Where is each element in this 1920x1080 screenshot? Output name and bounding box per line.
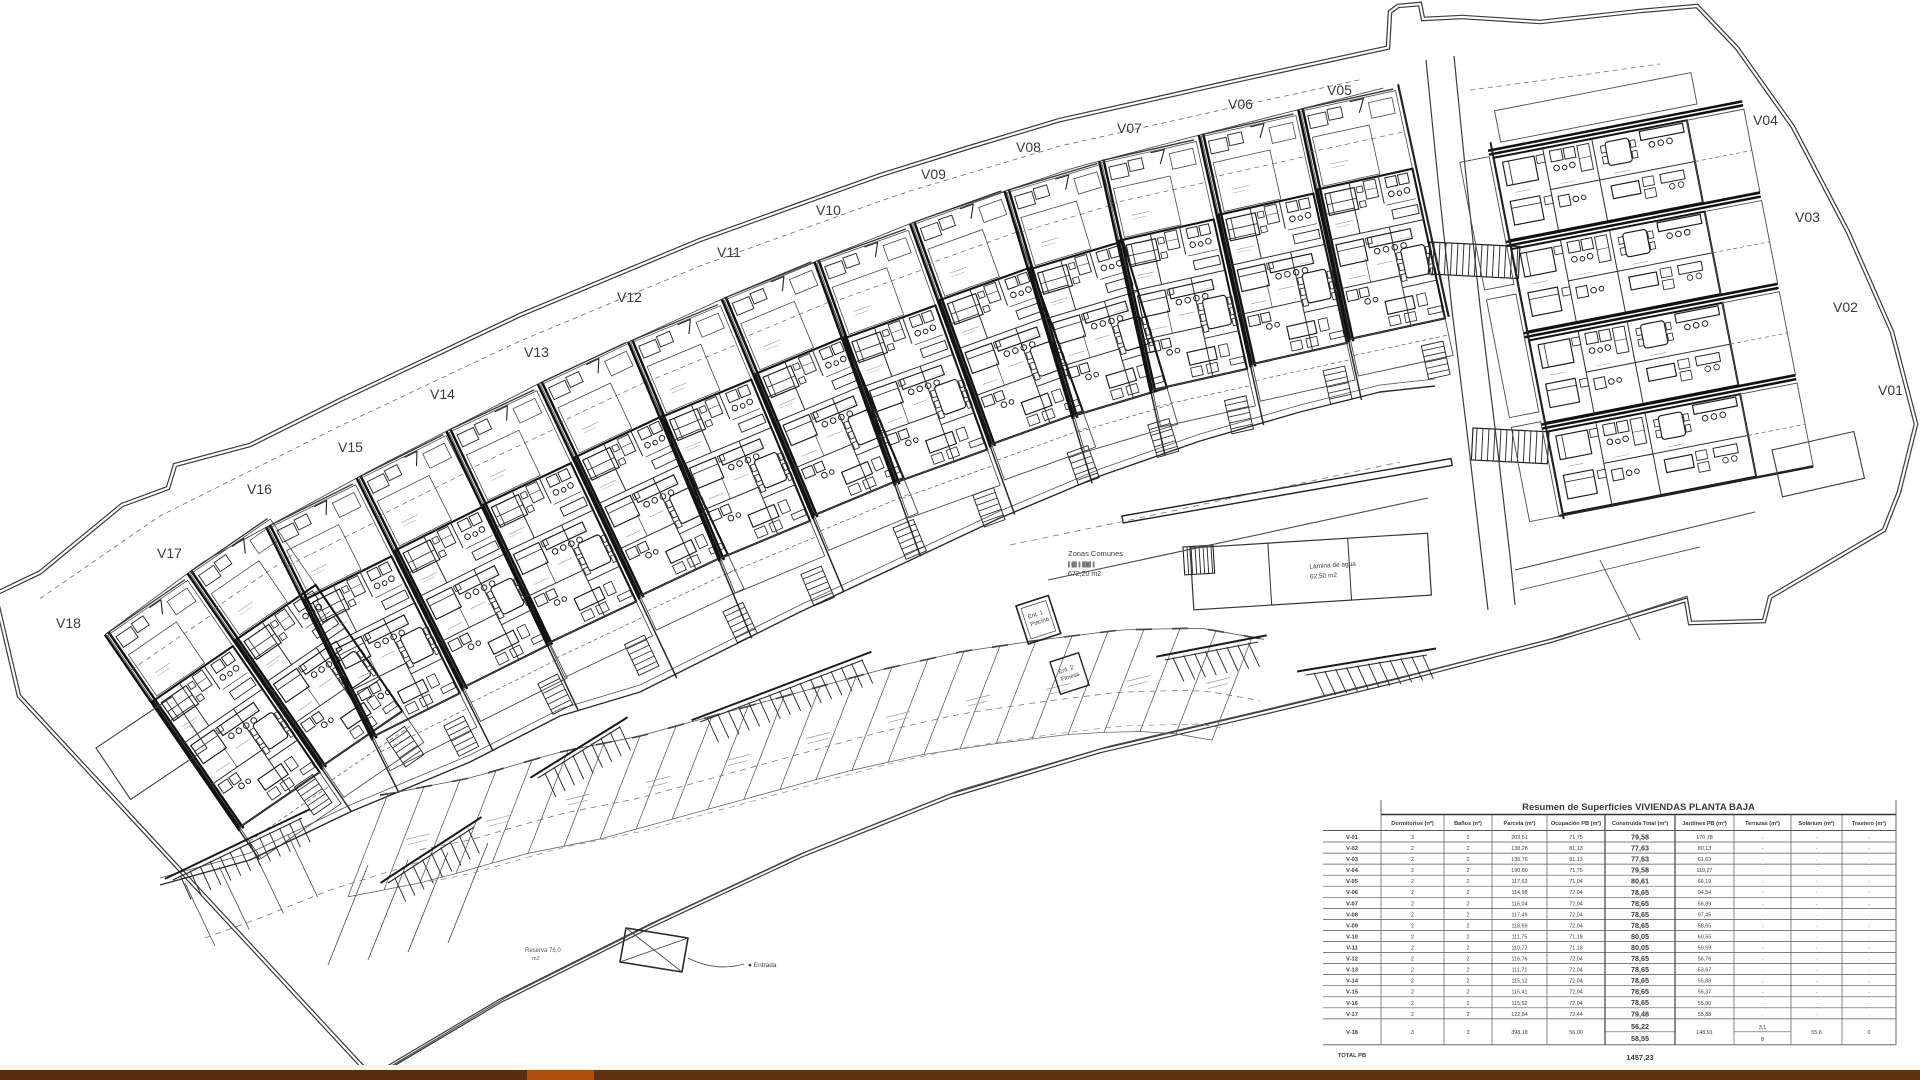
svg-text:▌█▌▌██▌▌: ▌█▌▌██▌▌ <box>1068 561 1096 568</box>
svg-text:-: - <box>1868 968 1870 974</box>
svg-text:-: - <box>1762 979 1764 985</box>
svg-text:116,04: 116,04 <box>1511 901 1527 907</box>
svg-text:V09: V09 <box>921 166 946 182</box>
svg-text:V17: V17 <box>157 545 182 561</box>
svg-text:V04: V04 <box>1753 112 1778 128</box>
svg-text:-: - <box>1762 1012 1764 1018</box>
svg-text:2: 2 <box>1411 990 1414 996</box>
svg-text:55,6: 55,6 <box>1811 1030 1822 1036</box>
svg-text:-: - <box>1762 846 1764 852</box>
svg-text:78,65: 78,65 <box>1631 921 1649 930</box>
svg-text:2: 2 <box>1467 901 1470 907</box>
svg-text:3,1: 3,1 <box>1759 1025 1767 1031</box>
svg-text:56,89: 56,89 <box>1698 901 1712 907</box>
svg-text:Baños (nº): Baños (nº) <box>1454 821 1482 827</box>
svg-text:0: 0 <box>1868 1030 1871 1036</box>
svg-text:-: - <box>1816 912 1818 918</box>
svg-text:Solárium (m²): Solárium (m²) <box>1798 820 1834 827</box>
svg-text:V18: V18 <box>56 615 81 631</box>
svg-text:72,04: 72,04 <box>1569 912 1583 918</box>
svg-text:-: - <box>1762 990 1764 996</box>
svg-text:-: - <box>1762 890 1764 896</box>
svg-text:116,76: 116,76 <box>1511 957 1527 963</box>
svg-text:-: - <box>1762 923 1764 929</box>
svg-text:-: - <box>1816 868 1818 874</box>
svg-text:3: 3 <box>1411 1030 1414 1036</box>
svg-text:2: 2 <box>1411 946 1414 952</box>
svg-text:-: - <box>1762 935 1764 941</box>
svg-text:V07: V07 <box>1117 120 1142 136</box>
svg-text:-: - <box>1868 890 1870 896</box>
svg-text:115,12: 115,12 <box>1511 979 1527 985</box>
svg-text:V-02: V-02 <box>1346 846 1358 852</box>
svg-text:V-17: V-17 <box>1346 1012 1358 1018</box>
svg-text:V-12: V-12 <box>1346 957 1358 963</box>
svg-text:72,04: 72,04 <box>1569 957 1583 963</box>
svg-text:V-01: V-01 <box>1346 835 1359 841</box>
svg-text:81,13: 81,13 <box>1569 857 1583 863</box>
svg-text:V-08: V-08 <box>1346 912 1359 918</box>
svg-text:2: 2 <box>1411 868 1414 874</box>
svg-text:-: - <box>1762 912 1764 918</box>
svg-text:2: 2 <box>1467 868 1470 874</box>
svg-text:● Entrada: ● Entrada <box>748 962 777 969</box>
svg-text:80,05: 80,05 <box>1631 943 1649 952</box>
svg-text:122,84: 122,84 <box>1511 1012 1528 1018</box>
svg-text:115,52: 115,52 <box>1511 1001 1527 1007</box>
svg-text:2: 2 <box>1467 923 1470 929</box>
svg-text:-: - <box>1762 857 1764 863</box>
svg-text:2: 2 <box>1467 857 1470 863</box>
svg-text:79,58: 79,58 <box>1631 833 1649 842</box>
svg-text:71,04: 71,04 <box>1569 879 1583 885</box>
svg-text:-: - <box>1868 857 1870 863</box>
svg-text:2: 2 <box>1411 935 1414 941</box>
svg-text:2: 2 <box>1411 901 1414 907</box>
svg-text:m2: m2 <box>532 956 540 962</box>
svg-text:V01: V01 <box>1878 382 1903 398</box>
svg-text:2: 2 <box>1467 990 1470 996</box>
svg-text:72,04: 72,04 <box>1569 890 1583 896</box>
svg-text:-: - <box>1816 879 1818 885</box>
svg-text:Parcela (m²): Parcela (m²) <box>1503 820 1535 827</box>
svg-text:60,55: 60,55 <box>1698 935 1712 941</box>
svg-text:-: - <box>1762 835 1764 841</box>
svg-text:78,65: 78,65 <box>1631 910 1649 919</box>
svg-text:Jardines PB (m²): Jardines PB (m²) <box>1682 820 1727 827</box>
svg-text:V13: V13 <box>524 344 549 360</box>
svg-text:117,49: 117,49 <box>1511 912 1527 918</box>
svg-text:71,18: 71,18 <box>1569 946 1583 952</box>
svg-text:170,78: 170,78 <box>1696 835 1713 841</box>
svg-text:-: - <box>1868 868 1870 874</box>
svg-text:398,18: 398,18 <box>1511 1030 1528 1036</box>
svg-text:2: 2 <box>1467 968 1470 974</box>
svg-text:2: 2 <box>1467 890 1470 896</box>
svg-text:-: - <box>1816 901 1818 907</box>
svg-text:-: - <box>1868 1001 1870 1007</box>
svg-text:71,18: 71,18 <box>1569 935 1583 941</box>
svg-text:V11: V11 <box>717 244 741 260</box>
svg-text:V-15: V-15 <box>1346 990 1359 996</box>
svg-text:2: 2 <box>1411 857 1414 863</box>
svg-text:2: 2 <box>1411 979 1414 985</box>
svg-text:-: - <box>1816 946 1818 952</box>
svg-text:3: 3 <box>1467 1030 1470 1036</box>
svg-text:-: - <box>1868 935 1870 941</box>
svg-text:V-14: V-14 <box>1346 979 1359 985</box>
svg-text:Reserva 76,0: Reserva 76,0 <box>525 948 561 954</box>
svg-text:-: - <box>1816 857 1818 863</box>
svg-text:8: 8 <box>1761 1037 1764 1043</box>
svg-text:V16: V16 <box>247 481 272 497</box>
svg-text:71,75: 71,75 <box>1569 868 1583 874</box>
svg-text:190,80: 190,80 <box>1511 868 1528 874</box>
svg-text:72,04: 72,04 <box>1569 1001 1583 1007</box>
svg-text:V15: V15 <box>338 439 363 455</box>
svg-text:2: 2 <box>1411 1001 1414 1007</box>
svg-text:117,63: 117,63 <box>1511 879 1527 885</box>
svg-text:V03: V03 <box>1795 209 1820 225</box>
svg-text:Resumen de Superficies VIVIEND: Resumen de Superficies VIVIENDAS PLANTA … <box>1522 802 1755 813</box>
svg-text:2: 2 <box>1411 1012 1414 1018</box>
svg-text:Ocupación PB (m²): Ocupación PB (m²) <box>1551 820 1601 827</box>
svg-text:-: - <box>1816 1012 1818 1018</box>
svg-text:-: - <box>1762 879 1764 885</box>
svg-text:56,00: 56,00 <box>1569 1030 1583 1036</box>
svg-text:-: - <box>1868 835 1870 841</box>
svg-text:72,04: 72,04 <box>1569 979 1583 985</box>
svg-text:V-11: V-11 <box>1346 946 1358 952</box>
svg-text:78,65: 78,65 <box>1631 899 1649 908</box>
svg-text:119,27: 119,27 <box>1696 868 1712 874</box>
svg-text:-: - <box>1816 835 1818 841</box>
svg-text:80,13: 80,13 <box>1698 846 1712 852</box>
svg-text:58,55: 58,55 <box>1631 1034 1649 1043</box>
svg-text:-: - <box>1868 1012 1870 1018</box>
svg-text:79,48: 79,48 <box>1631 1009 1649 1018</box>
svg-text:-: - <box>1868 923 1870 929</box>
svg-text:-: - <box>1816 890 1818 896</box>
svg-text:-: - <box>1816 990 1818 996</box>
svg-text:72,04: 72,04 <box>1569 923 1583 929</box>
svg-text:66,19: 66,19 <box>1698 879 1712 885</box>
svg-text:2: 2 <box>1411 957 1414 963</box>
svg-text:55,88: 55,88 <box>1698 979 1712 985</box>
svg-text:TOTAL PB: TOTAL PB <box>1338 1053 1366 1059</box>
svg-text:77,63: 77,63 <box>1631 844 1649 853</box>
svg-text:Terrazas (m²): Terrazas (m²) <box>1745 820 1780 827</box>
svg-text:56,76: 56,76 <box>1698 957 1712 963</box>
svg-text:V12: V12 <box>617 289 642 305</box>
svg-text:-: - <box>1868 946 1870 952</box>
svg-text:2: 2 <box>1411 846 1414 852</box>
svg-text:94,54: 94,54 <box>1698 890 1712 896</box>
svg-text:111,71: 111,71 <box>1512 968 1528 974</box>
svg-text:78,65: 78,65 <box>1631 987 1649 996</box>
svg-text:2: 2 <box>1467 879 1470 885</box>
svg-text:2: 2 <box>1411 879 1414 885</box>
svg-text:Trastero (m²): Trastero (m²) <box>1852 820 1886 827</box>
svg-text:78,65: 78,65 <box>1631 954 1649 963</box>
svg-text:78,65: 78,65 <box>1631 888 1649 897</box>
svg-text:55,80: 55,80 <box>1698 1001 1712 1007</box>
svg-text:2: 2 <box>1411 968 1414 974</box>
svg-text:72,04: 72,04 <box>1569 990 1583 996</box>
svg-text:V10: V10 <box>816 202 841 218</box>
svg-text:72,44: 72,44 <box>1569 1012 1583 1018</box>
svg-text:55,37: 55,37 <box>1698 990 1712 996</box>
svg-text:2: 2 <box>1467 1012 1470 1018</box>
svg-text:138,28: 138,28 <box>1511 846 1528 852</box>
svg-text:81,13: 81,13 <box>1569 846 1583 852</box>
svg-text:61,63: 61,63 <box>1698 857 1712 863</box>
svg-text:-: - <box>1816 923 1818 929</box>
svg-text:72,04: 72,04 <box>1569 968 1583 974</box>
svg-text:-: - <box>1868 990 1870 996</box>
svg-text:55,88: 55,88 <box>1698 1012 1712 1018</box>
svg-text:77,63: 77,63 <box>1631 855 1649 864</box>
svg-text:-: - <box>1816 1001 1818 1007</box>
svg-text:V-04: V-04 <box>1346 868 1359 874</box>
svg-text:-: - <box>1868 879 1870 885</box>
svg-text:-: - <box>1816 968 1818 974</box>
svg-text:2: 2 <box>1467 946 1470 952</box>
svg-text:Construida Total (m²): Construida Total (m²) <box>1612 820 1668 827</box>
svg-text:80,05: 80,05 <box>1631 932 1649 941</box>
svg-text:-: - <box>1762 1001 1764 1007</box>
svg-text:-: - <box>1816 935 1818 941</box>
svg-text:3: 3 <box>1411 835 1414 841</box>
svg-text:2: 2 <box>1467 912 1470 918</box>
svg-text:-: - <box>1762 946 1764 952</box>
svg-text:V-07: V-07 <box>1346 901 1358 907</box>
svg-text:78,65: 78,65 <box>1631 976 1649 985</box>
svg-text:-: - <box>1868 957 1870 963</box>
svg-text:136,76: 136,76 <box>1511 857 1528 863</box>
svg-text:111,75: 111,75 <box>1512 935 1528 941</box>
svg-text:-: - <box>1762 901 1764 907</box>
svg-text:114,98: 114,98 <box>1511 890 1527 896</box>
svg-text:78,65: 78,65 <box>1631 998 1649 1007</box>
svg-text:2: 2 <box>1467 979 1470 985</box>
svg-text:71,75: 71,75 <box>1569 835 1583 841</box>
svg-text:2: 2 <box>1467 957 1470 963</box>
svg-text:2: 2 <box>1467 846 1470 852</box>
svg-text:53,67: 53,67 <box>1698 968 1712 974</box>
svg-text:Dormitorios (nº): Dormitorios (nº) <box>1391 821 1434 827</box>
svg-text:2: 2 <box>1411 923 1414 929</box>
svg-text:V-05: V-05 <box>1346 879 1359 885</box>
svg-text:59,59: 59,59 <box>1698 946 1712 952</box>
svg-text:V02: V02 <box>1833 299 1858 315</box>
svg-text:97,45: 97,45 <box>1698 912 1712 918</box>
svg-text:-: - <box>1816 957 1818 963</box>
svg-text:V06: V06 <box>1228 96 1253 112</box>
svg-text:2: 2 <box>1411 890 1414 896</box>
svg-text:56,22: 56,22 <box>1631 1022 1649 1031</box>
svg-text:-: - <box>1868 912 1870 918</box>
svg-text:-: - <box>1816 979 1818 985</box>
svg-text:V-10: V-10 <box>1346 935 1358 941</box>
svg-text:203,51: 203,51 <box>1511 835 1528 841</box>
svg-text:-: - <box>1762 968 1764 974</box>
svg-text:-: - <box>1816 846 1818 852</box>
svg-text:-: - <box>1868 901 1870 907</box>
svg-text:110,72: 110,72 <box>1511 946 1527 952</box>
svg-text:-: - <box>1868 846 1870 852</box>
svg-text:V05: V05 <box>1327 82 1352 98</box>
svg-text:115,41: 115,41 <box>1511 990 1527 996</box>
svg-text:2: 2 <box>1411 912 1414 918</box>
svg-text:-: - <box>1762 868 1764 874</box>
svg-text:2: 2 <box>1467 935 1470 941</box>
svg-text:V-13: V-13 <box>1346 968 1359 974</box>
svg-text:79,58: 79,58 <box>1631 866 1649 875</box>
svg-text:V-09: V-09 <box>1346 923 1359 929</box>
svg-text:58,65: 58,65 <box>1698 923 1712 929</box>
svg-text:-: - <box>1762 957 1764 963</box>
svg-text:V-06: V-06 <box>1346 890 1359 896</box>
svg-text:Zonas Comunes: Zonas Comunes <box>1068 549 1123 558</box>
svg-text:72,04: 72,04 <box>1569 901 1583 907</box>
svg-text:V-03: V-03 <box>1346 857 1359 863</box>
svg-text:2: 2 <box>1467 835 1470 841</box>
svg-text:2: 2 <box>1467 1001 1470 1007</box>
svg-text:V-18: V-18 <box>1346 1030 1359 1036</box>
svg-text:1457,23: 1457,23 <box>1626 1053 1653 1062</box>
svg-text:118,69: 118,69 <box>1511 923 1527 929</box>
svg-text:-: - <box>1868 979 1870 985</box>
svg-text:V08: V08 <box>1016 139 1041 155</box>
svg-text:V-16: V-16 <box>1346 1001 1359 1007</box>
svg-text:148,91: 148,91 <box>1696 1030 1713 1036</box>
svg-text:78,65: 78,65 <box>1631 965 1649 974</box>
svg-text:80,61: 80,61 <box>1631 877 1649 886</box>
svg-text:V14: V14 <box>430 386 455 402</box>
